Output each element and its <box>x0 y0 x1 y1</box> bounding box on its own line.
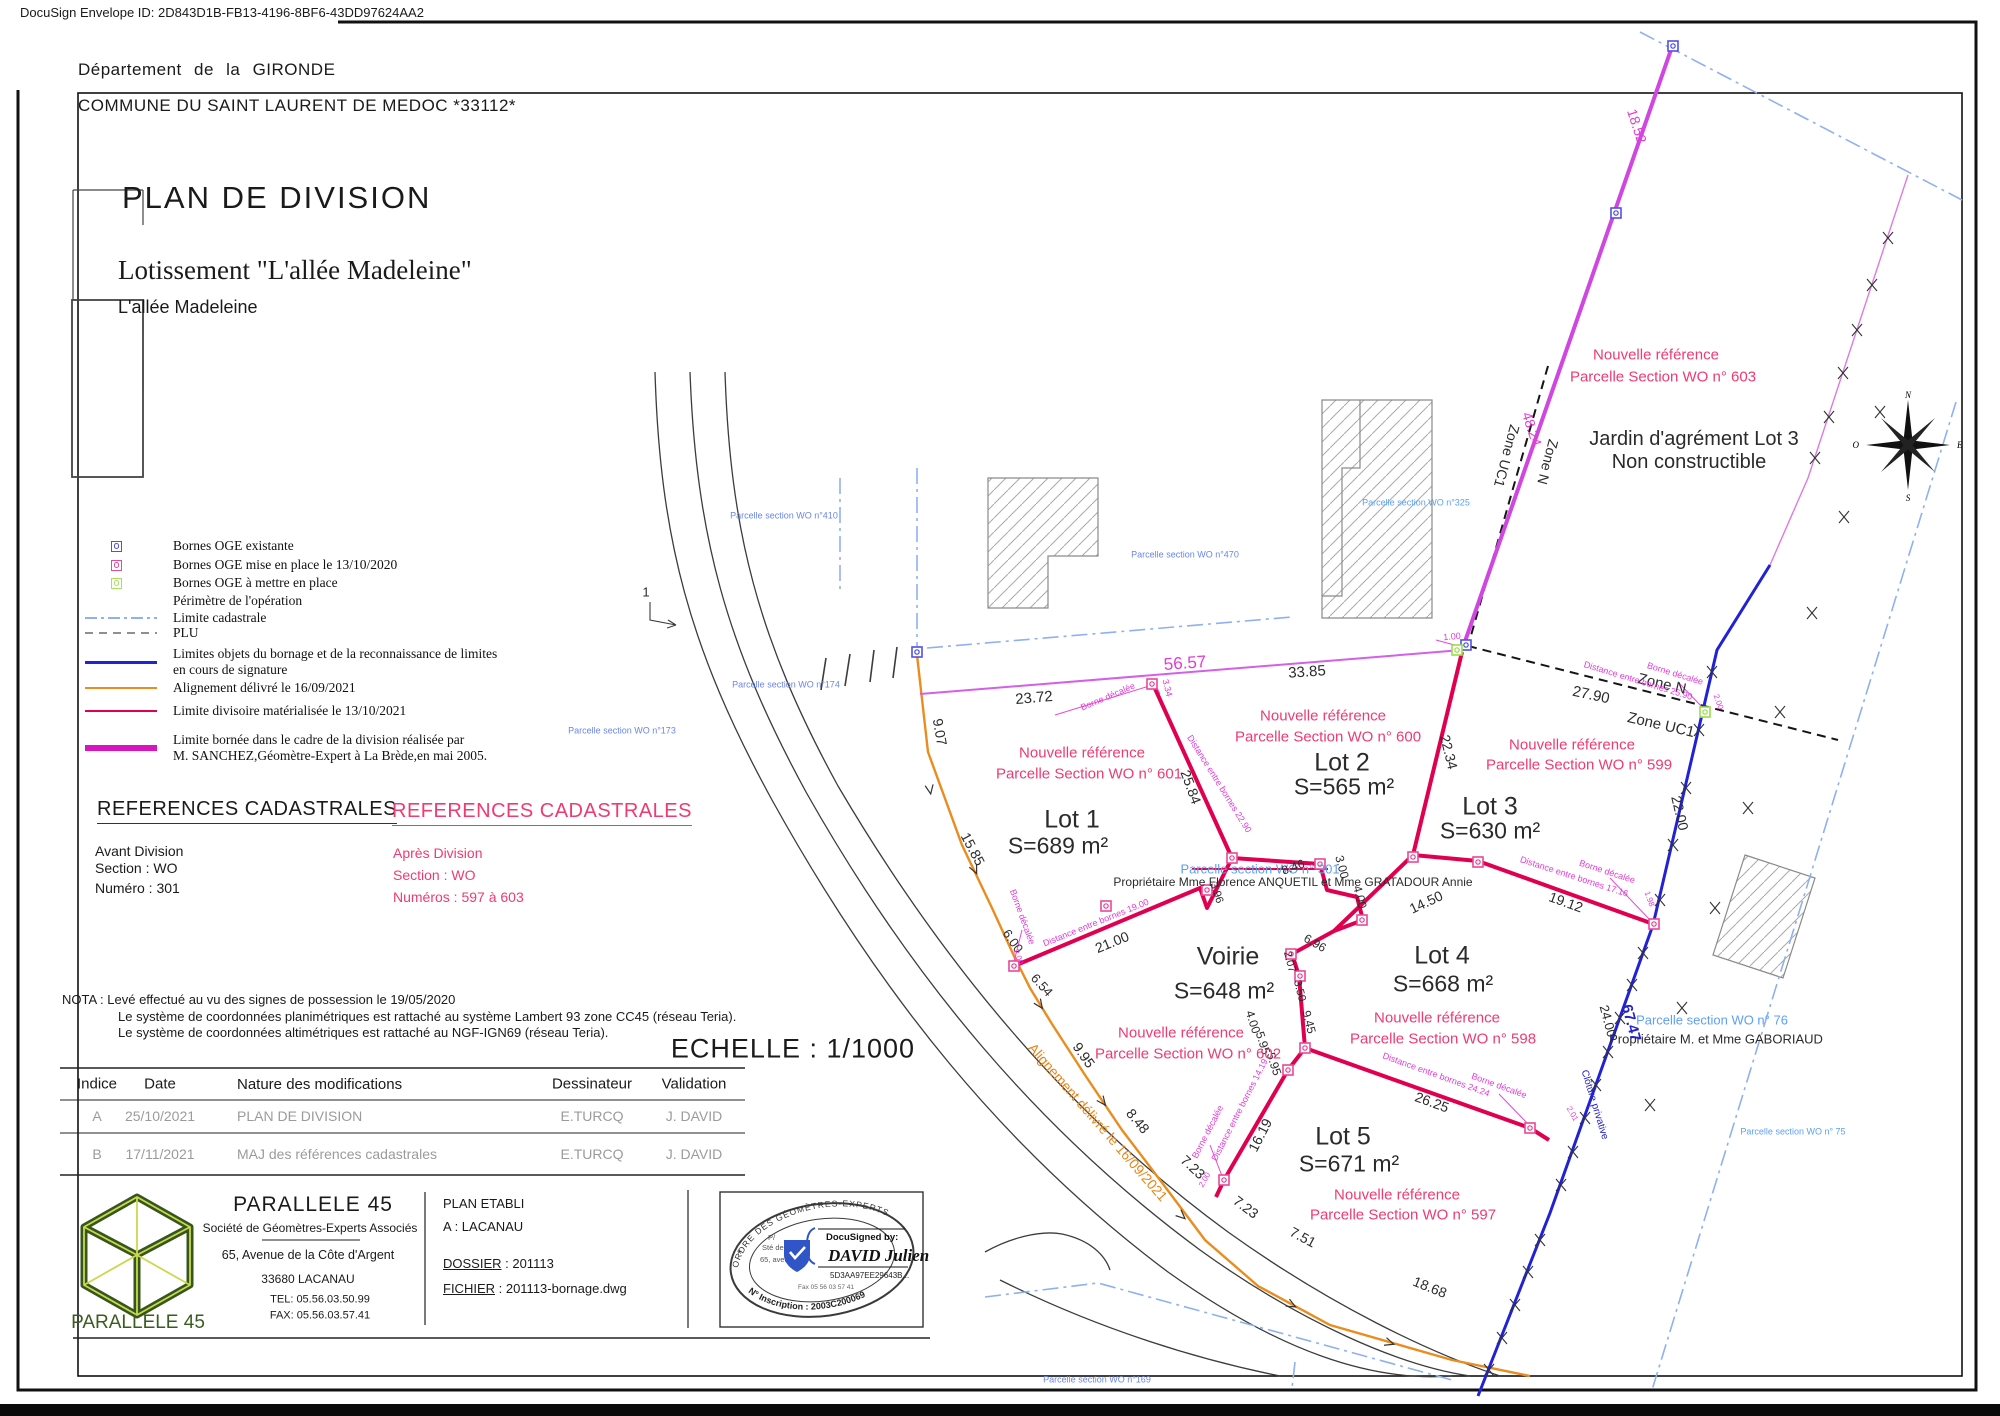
boundary-x-mark <box>1645 1099 1655 1111</box>
limite-est-rose <box>1770 175 1908 565</box>
legend-item: Limite divisoire matérialisée le 13/10/2… <box>85 703 406 719</box>
boundary-x-mark <box>1810 452 1820 464</box>
map-label: Parcelle section WO n°325 <box>1362 499 1470 508</box>
line-sample-icon <box>85 661 159 664</box>
boundary-x-mark <box>1867 279 1877 291</box>
map-label: Nouvelle référence <box>1019 746 1145 761</box>
rev-row-cell: 17/11/2021 <box>125 1146 194 1162</box>
nota-line3: Le système de coordonnées altimétriques … <box>118 1026 608 1041</box>
svg-text:DAVID Julien: DAVID Julien <box>827 1246 929 1265</box>
legend-item-label: Limite cadastrale <box>173 610 266 626</box>
svg-text:E: E <box>1956 440 1963 450</box>
borne-marker-icon <box>85 578 159 589</box>
map-label: S=630 m² <box>1440 820 1540 843</box>
map-label: Non constructible <box>1612 452 1767 472</box>
map-label: Parcelle Section WO n° 599 <box>1486 758 1672 773</box>
map-label: 1.00 <box>1443 632 1461 642</box>
borne-marker-icon <box>912 647 922 657</box>
firm-name: PARALLELE 45 <box>233 1193 393 1217</box>
legend-item-label: Limite divisoire matérialisée le 13/10/2… <box>173 703 406 719</box>
map-label: Lot 1 <box>1044 808 1100 833</box>
svg-text:O: O <box>1853 440 1860 450</box>
svg-text:P/: P/ <box>768 1233 776 1242</box>
borne-marker-icon <box>85 541 159 552</box>
docusign-envelope-id: DocuSign Envelope ID: 2D843D1B-FB13-4196… <box>20 6 424 21</box>
line-sample-icon <box>85 710 159 713</box>
legend-item-label: Limites objets du bornage et de la recon… <box>173 646 497 678</box>
scale-label: ECHELLE : 1/1000 <box>671 1033 915 1064</box>
references-avant-line2: Section : WO <box>95 860 177 876</box>
map-label: Propriétaire Mme Florence ANQUETIL et Mm… <box>1113 876 1472 888</box>
map-label: Parcelle section WO n°173 <box>568 727 676 736</box>
map-label: Parcelle section WO n°410 <box>730 512 838 521</box>
map-label: Parcelle section WO n° 76 <box>1636 1014 1788 1027</box>
page-bottom-bar <box>0 1404 2000 1416</box>
rev-row-cell: J. DAVID <box>666 1146 723 1162</box>
map-label: Parcelle Section WO n° 603 <box>1570 370 1756 385</box>
borne-marker-icon <box>1473 857 1483 867</box>
line-sample-icon <box>85 687 159 690</box>
subdivision-title: Lotissement "L'allée Madeleine" <box>118 255 472 286</box>
compass-rose: N S E O <box>1853 390 1964 503</box>
borne-marker-icon <box>1700 707 1710 717</box>
borne-marker-icon <box>1649 919 1659 929</box>
legend-item: Périmètre de l'opération <box>85 593 302 609</box>
map-label: S=565 m² <box>1294 776 1394 799</box>
firm-city: 33680 LACANAU <box>261 1273 354 1287</box>
references-avant-title: REFERENCES CADASTRALES <box>97 798 397 824</box>
firm-subtitle: Société de Géomètres-Experts Associés <box>203 1222 418 1236</box>
boundary-x-mark <box>1875 406 1885 418</box>
rev-row-cell: J. DAVID <box>666 1108 723 1124</box>
limite-bornage-bleue <box>1478 565 1770 1396</box>
map-label: Jardin d'agrément Lot 3 <box>1589 429 1799 449</box>
title-bracket <box>72 190 143 477</box>
boundary-x-mark <box>1807 607 1817 619</box>
references-apres-title: REFERENCES CADASTRALES <box>392 800 692 826</box>
map-label: Nouvelle référence <box>1509 738 1635 753</box>
borne-marker-icon <box>1300 1043 1310 1053</box>
borne-marker-icon <box>1452 645 1462 655</box>
boundary-x-mark <box>1743 802 1753 814</box>
legend-item-label: PLU <box>173 625 199 641</box>
map-label: Nouvelle référence <box>1334 1188 1460 1203</box>
svg-text:DocuSigned by:: DocuSigned by: <box>826 1232 898 1243</box>
svg-text:65, aver: 65, aver <box>760 1255 788 1264</box>
plan-etabli-line: A : LACANAU <box>443 1220 523 1235</box>
map-label: Nouvelle référence <box>1374 1011 1500 1026</box>
rev-row-cell: E.TURCQ <box>561 1108 624 1124</box>
dossier-line: DOSSIER : 201113 <box>443 1257 554 1272</box>
boundary-x-mark <box>1838 367 1848 379</box>
nota-line2: Le système de coordonnées planimétriques… <box>118 1010 736 1025</box>
rev-row-cell: 25/10/2021 <box>125 1108 195 1124</box>
legend-item-label: Bornes OGE existante <box>173 538 294 554</box>
firm-tel: TEL: 05.56.03.50.99 <box>270 1294 370 1307</box>
legend-item: Alignement délivré le 16/09/2021 <box>85 680 356 696</box>
legend-item-label: Bornes OGE mise en place le 13/10/2020 <box>173 557 397 573</box>
borne-marker-icon <box>1408 852 1418 862</box>
borne-marker-icon <box>1525 1123 1535 1133</box>
map-label: Parcelle Section WO n° 602 <box>1095 1047 1281 1062</box>
legend-item: Limites objets du bornage et de la recon… <box>85 646 497 678</box>
legend-item-label: Bornes OGE à mettre en place <box>173 575 338 591</box>
map-label: S=668 m² <box>1393 973 1493 996</box>
rev-row-cell: PLAN DE DIVISION <box>237 1108 362 1124</box>
legend-item: Limite cadastrale <box>85 610 266 626</box>
borne-marker-icon <box>1357 915 1367 925</box>
rev-header-date: Date <box>144 1075 176 1092</box>
plan-document: N S E O <box>0 0 2000 1416</box>
map-label: S=671 m² <box>1299 1153 1399 1176</box>
rev-header-validation: Validation <box>662 1075 727 1092</box>
references-avant-line3: Numéro : 301 <box>95 880 180 896</box>
boundary-x-mark <box>1710 902 1720 914</box>
map-label: 1 <box>642 586 649 599</box>
map-label: Lot 5 <box>1315 1125 1371 1150</box>
map-label: Parcelle Section WO n° 598 <box>1350 1032 1536 1047</box>
boundary-x-mark <box>1839 511 1849 523</box>
map-label: S=648 m² <box>1174 980 1274 1003</box>
borne-marker-icon <box>85 560 159 571</box>
svg-text:S: S <box>1906 493 1911 503</box>
svg-text:N: N <box>1904 390 1912 400</box>
rev-header-indice: Indice <box>77 1075 117 1092</box>
legend-item: Limite bornée dans le cadre de la divisi… <box>85 732 487 764</box>
map-label: Lot 4 <box>1414 944 1470 969</box>
rev-header-nature: Nature des modifications <box>237 1076 402 1093</box>
map-label: Parcelle section WO n°169 <box>1043 1376 1151 1385</box>
commune-label: COMMUNE DU SAINT LAURENT DE MEDOC *33112… <box>78 96 516 116</box>
line-sample-icon <box>85 617 159 619</box>
nota-line1: NOTA : Levé effectué au vu des signes de… <box>62 993 455 1008</box>
street-label: L'allée Madeleine <box>118 297 258 318</box>
svg-text:Sté de: Sté de <box>762 1243 784 1252</box>
map-label: S=689 m² <box>1008 835 1108 858</box>
svg-text:*: * <box>737 1247 742 1261</box>
borne-marker-icon <box>1219 1175 1229 1185</box>
legend-item: Bornes OGE à mettre en place <box>85 575 338 591</box>
map-label: Voirie <box>1197 945 1260 970</box>
map-label: Nouvelle référence <box>1260 709 1386 724</box>
line-sample-icon <box>85 745 159 751</box>
borne-marker-icon <box>1283 1065 1293 1075</box>
map-label: 56.57 <box>1163 653 1207 673</box>
borne-marker-icon <box>1147 679 1157 689</box>
firm-fax: FAX: 05.56.03.57.41 <box>270 1310 370 1323</box>
plan-etabli-title: PLAN ETABLI <box>443 1197 524 1212</box>
map-label: Lot 3 <box>1462 795 1518 820</box>
map-label: Parcelle Section WO n° 600 <box>1235 730 1421 745</box>
map-label: 9.07 <box>931 717 950 746</box>
map-label: Parcelle section WO n°174 <box>732 681 840 690</box>
borne-marker-icon <box>1101 901 1111 911</box>
department-label: Département de la GIRONDE <box>78 60 335 80</box>
legend-item: Bornes OGE existante <box>85 538 294 554</box>
legend-item: PLU <box>85 625 199 641</box>
rev-row-cell: A <box>92 1108 101 1124</box>
map-label: Parcelle Section WO n° 601 <box>996 767 1182 782</box>
rev-header-dessinateur: Dessinateur <box>552 1075 632 1092</box>
rev-row-cell: B <box>92 1146 101 1162</box>
fichier-line: FICHIER : 201113-bornage.dwg <box>443 1282 627 1297</box>
rev-row-cell: MAJ des références cadastrales <box>237 1146 437 1162</box>
references-avant-line1: Avant Division <box>95 843 183 859</box>
references-apres-line2: Section : WO <box>393 867 475 883</box>
rev-row-cell: E.TURCQ <box>561 1146 624 1162</box>
firm-address: 65, Avenue de la Côte d'Argent <box>222 1248 394 1262</box>
legend-item-label: Périmètre de l'opération <box>173 593 302 609</box>
boundary-x-mark <box>1852 324 1862 336</box>
map-label: Parcelle Section WO n° 597 <box>1310 1208 1496 1223</box>
map-label: Nouvelle référence <box>1593 348 1719 363</box>
stamp: ORDRE DES GÉOMÈTRES-EXPERTS N° Inscripti… <box>720 1192 929 1329</box>
references-apres-line1: Après Division <box>393 845 482 861</box>
references-apres-line3: Numéros : 597 à 603 <box>393 889 524 905</box>
map-label: 33.85 <box>1288 663 1327 681</box>
parallele45-logo <box>84 1197 190 1315</box>
map-label: Parcelle section WO n° 75 <box>1740 1128 1845 1137</box>
legend-item-label: Alignement délivré le 16/09/2021 <box>173 680 356 696</box>
map-label: Lot 2 <box>1314 751 1370 776</box>
svg-text:Fax 05 56 03 57 41: Fax 05 56 03 57 41 <box>798 1284 854 1291</box>
firm-logo-caption: PARALLELE 45 <box>71 1312 205 1334</box>
map-label: Parcelle section WO n°470 <box>1131 551 1239 560</box>
svg-text:5D3AA97EE29643B...: 5D3AA97EE29643B... <box>830 1271 909 1280</box>
boundary-x-mark <box>1775 706 1785 718</box>
borne-marker-icon <box>1611 208 1621 218</box>
map-label: Nouvelle référence <box>1118 1026 1244 1041</box>
map-label: 23.72 <box>1015 689 1054 707</box>
map-label: Parcelle section WO n° 301 <box>1180 863 1339 876</box>
legend-item: Bornes OGE mise en place le 13/10/2020 <box>85 557 397 573</box>
page-title: PLAN DE DIVISION <box>122 180 431 216</box>
line-sample-icon <box>85 632 159 634</box>
borne-marker-icon <box>1668 41 1678 51</box>
legend-item-label: Limite bornée dans le cadre de la divisi… <box>173 732 487 764</box>
